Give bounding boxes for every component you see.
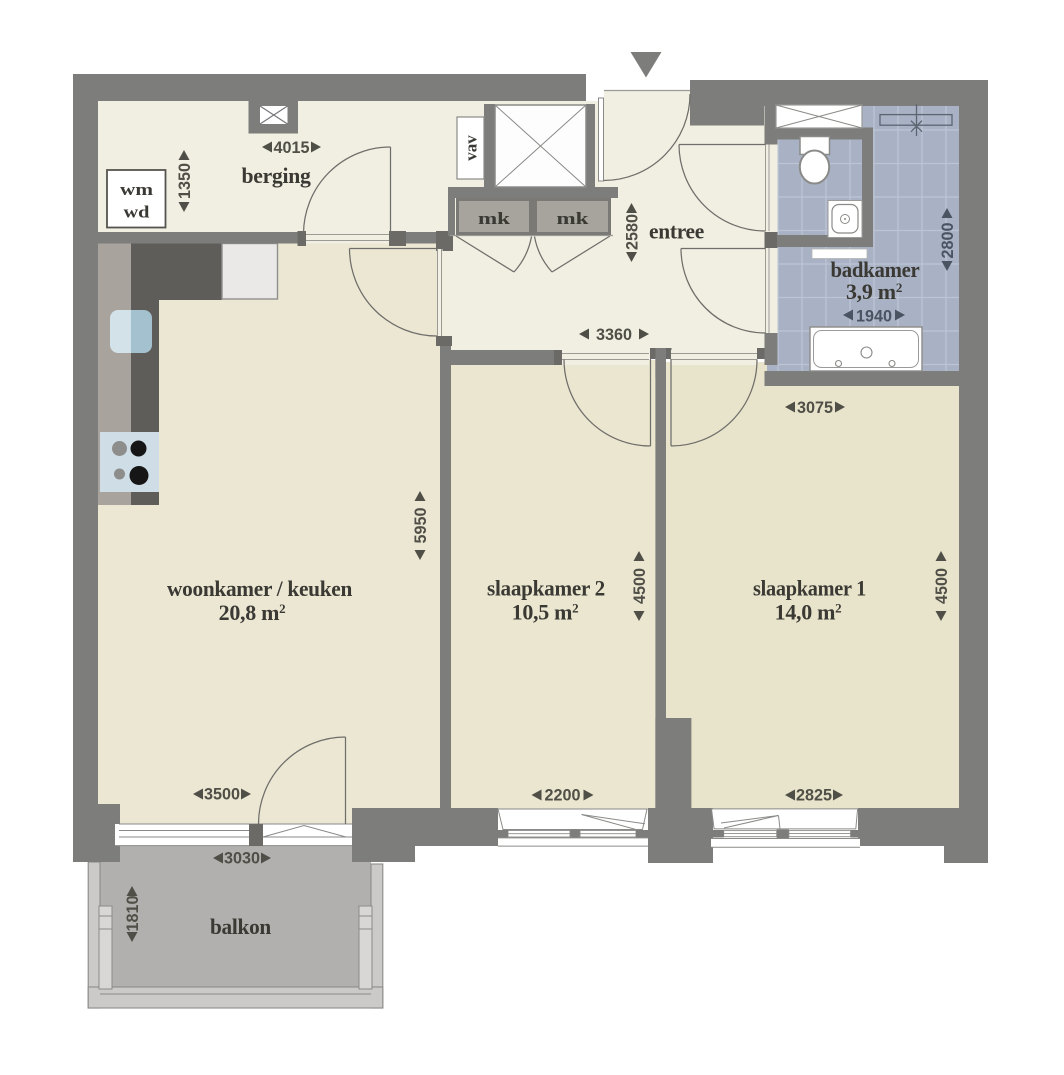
svg-text:woonkamer / keuken: woonkamer / keuken: [167, 576, 352, 601]
svg-text:2580: 2580: [623, 214, 642, 250]
svg-text:1350: 1350: [175, 163, 194, 199]
svg-text:10,5 m2: 10,5 m2: [512, 600, 579, 625]
svg-text:5950: 5950: [411, 508, 430, 544]
svg-text:vav: vav: [462, 135, 481, 161]
svg-text:3,9 m2: 3,9 m2: [846, 279, 902, 304]
svg-text:balkon: balkon: [210, 914, 271, 939]
svg-text:1810: 1810: [123, 896, 142, 932]
svg-text:14,0 m2: 14,0 m2: [775, 600, 842, 625]
svg-text:entree: entree: [649, 219, 705, 244]
svg-text:mk: mk: [557, 209, 590, 228]
svg-text:2800: 2800: [938, 223, 957, 259]
svg-text:slaapkamer 1: slaapkamer 1: [753, 576, 866, 601]
svg-text:2825: 2825: [796, 786, 832, 805]
svg-text:mk: mk: [478, 209, 511, 228]
svg-text:wd: wd: [124, 203, 151, 222]
svg-text:20,8 m2: 20,8 m2: [219, 600, 286, 625]
svg-text:berging: berging: [242, 163, 311, 188]
svg-text:2200: 2200: [545, 786, 581, 805]
svg-text:4500: 4500: [932, 568, 951, 604]
svg-text:1940: 1940: [856, 307, 892, 326]
svg-text:4500: 4500: [630, 568, 649, 604]
svg-text:3360: 3360: [596, 325, 632, 344]
svg-text:3030: 3030: [224, 849, 260, 868]
svg-text:3075: 3075: [797, 398, 833, 417]
svg-text:wm: wm: [120, 180, 153, 199]
svg-text:4015: 4015: [274, 138, 310, 157]
svg-text:slaapkamer 2: slaapkamer 2: [487, 576, 605, 601]
svg-text:3500: 3500: [204, 785, 240, 804]
